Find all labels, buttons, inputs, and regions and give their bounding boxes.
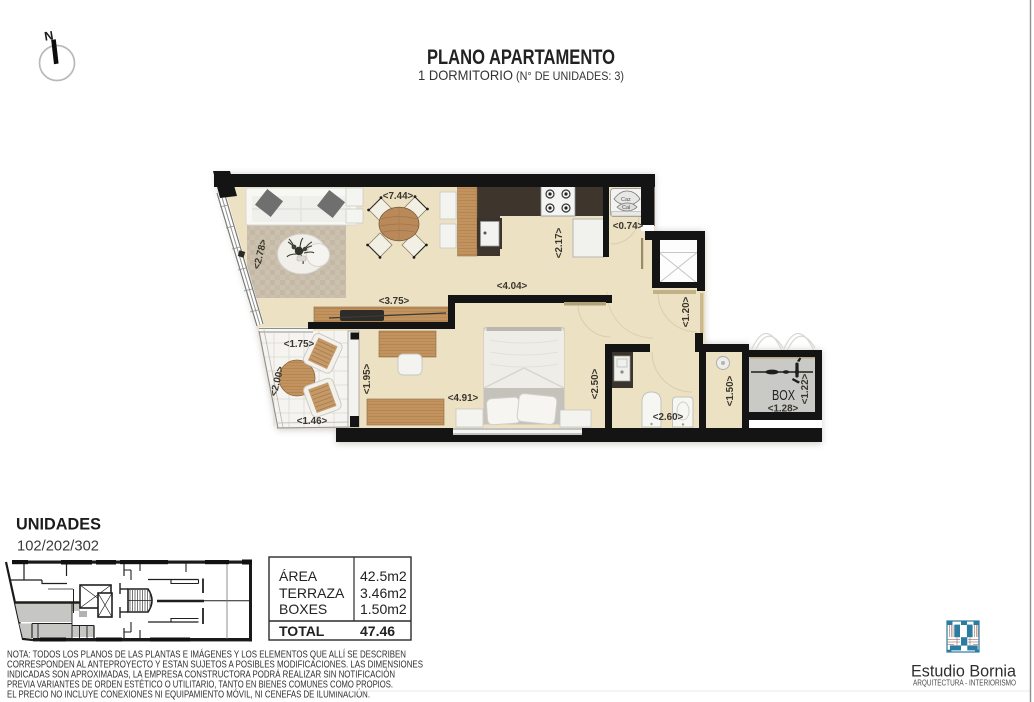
- svg-text:<2.60>: <2.60>: [653, 412, 684, 423]
- svg-text:3.46m2: 3.46m2: [360, 585, 407, 601]
- svg-text:<2.50>: <2.50>: [590, 368, 601, 399]
- svg-text:ÁREA: ÁREA: [279, 568, 318, 584]
- svg-text:<1.75>: <1.75>: [284, 339, 315, 350]
- svg-text:Caz: Caz: [621, 197, 631, 203]
- svg-text:<2.17>: <2.17>: [554, 227, 565, 258]
- svg-text:<7.44>: <7.44>: [383, 191, 414, 202]
- svg-text:TOTAL: TOTAL: [279, 623, 325, 639]
- svg-text:BOXES: BOXES: [279, 601, 327, 617]
- svg-text:<1.95>: <1.95>: [362, 363, 373, 394]
- svg-text:47.46: 47.46: [360, 623, 395, 639]
- svg-text:BOX: BOX: [772, 387, 795, 404]
- svg-text:<1.46>: <1.46>: [297, 416, 328, 427]
- svg-text:1.50m2: 1.50m2: [360, 601, 407, 617]
- svg-text:ARQUITECTURA - INTERIORISMO: ARQUITECTURA - INTERIORISMO: [913, 679, 1016, 688]
- svg-text:<1.28>: <1.28>: [768, 404, 799, 415]
- svg-text:N: N: [43, 28, 54, 43]
- svg-text:<1.50>: <1.50>: [725, 375, 736, 406]
- svg-text:102/202/302: 102/202/302: [17, 538, 99, 555]
- svg-text:<3.75>: <3.75>: [379, 296, 410, 307]
- svg-text:TERRAZA: TERRAZA: [279, 585, 345, 601]
- svg-text:(N° DE UNIDADES: 3): (N° DE UNIDADES: 3): [516, 71, 624, 83]
- svg-text:1 DORMITORIO: 1 DORMITORIO: [418, 67, 513, 83]
- svg-text:Cal: Cal: [622, 205, 630, 211]
- svg-text:<4.91>: <4.91>: [448, 393, 479, 404]
- svg-text:<1.22>: <1.22>: [800, 373, 811, 404]
- svg-text:<4.04>: <4.04>: [497, 281, 528, 292]
- svg-text:PLANO APARTAMENTO: PLANO APARTAMENTO: [427, 46, 615, 69]
- svg-text:UNIDADES: UNIDADES: [16, 516, 101, 534]
- svg-text:<0.74>: <0.74>: [613, 221, 644, 232]
- svg-text:<1.20>: <1.20>: [681, 296, 692, 327]
- svg-text:EL PRECIO NO INCLUYE CONEXIONE: EL PRECIO NO INCLUYE CONEXIONES NI EQUIP…: [7, 689, 370, 700]
- svg-text:42.5m2: 42.5m2: [360, 568, 407, 584]
